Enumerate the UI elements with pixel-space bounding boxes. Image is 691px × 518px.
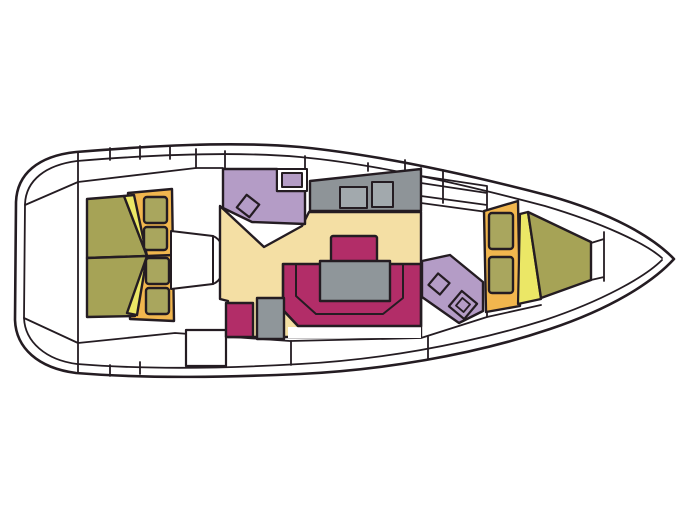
galley-stove — [340, 187, 367, 208]
floor-white-strip — [288, 327, 421, 338]
page-background — [0, 0, 691, 518]
aft-locker-1 — [144, 197, 167, 223]
forward-locker-2 — [489, 257, 513, 293]
aft-head-shower-tray — [282, 173, 302, 187]
forward-locker-1 — [489, 213, 513, 249]
companionway-box — [171, 231, 213, 289]
aft-cabinet-divider — [147, 255, 174, 256]
dinette-table — [320, 261, 390, 301]
aft-cabin — [87, 189, 174, 321]
aft-locker-3 — [146, 258, 169, 284]
side-seat — [226, 303, 253, 337]
yacht-floor-plan — [0, 0, 691, 518]
settee-back-cushion — [331, 236, 377, 262]
aft-locker-4 — [146, 288, 169, 314]
galley-sink — [372, 182, 393, 207]
aft-locker-2 — [144, 227, 167, 250]
cabinet-block — [257, 298, 284, 339]
boarding-gate — [186, 330, 226, 366]
